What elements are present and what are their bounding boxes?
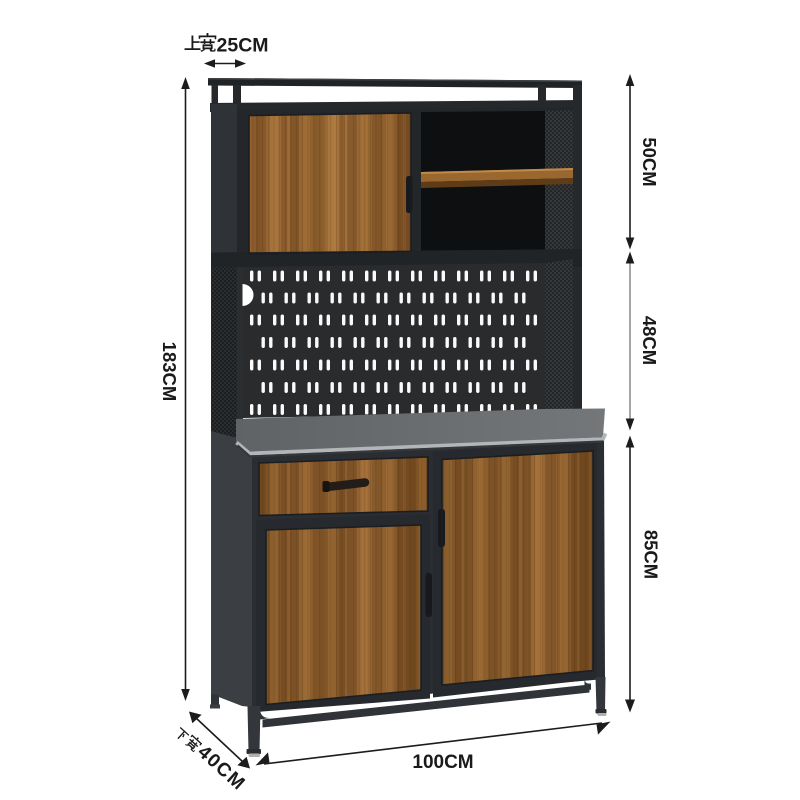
svg-text:85CM: 85CM [641,530,662,579]
svg-text:25CM: 25CM [217,35,269,57]
svg-text:183CM: 183CM [159,342,180,402]
svg-text:100CM: 100CM [412,752,473,773]
svg-text:48CM: 48CM [639,316,660,365]
svg-text:50CM: 50CM [639,137,660,186]
